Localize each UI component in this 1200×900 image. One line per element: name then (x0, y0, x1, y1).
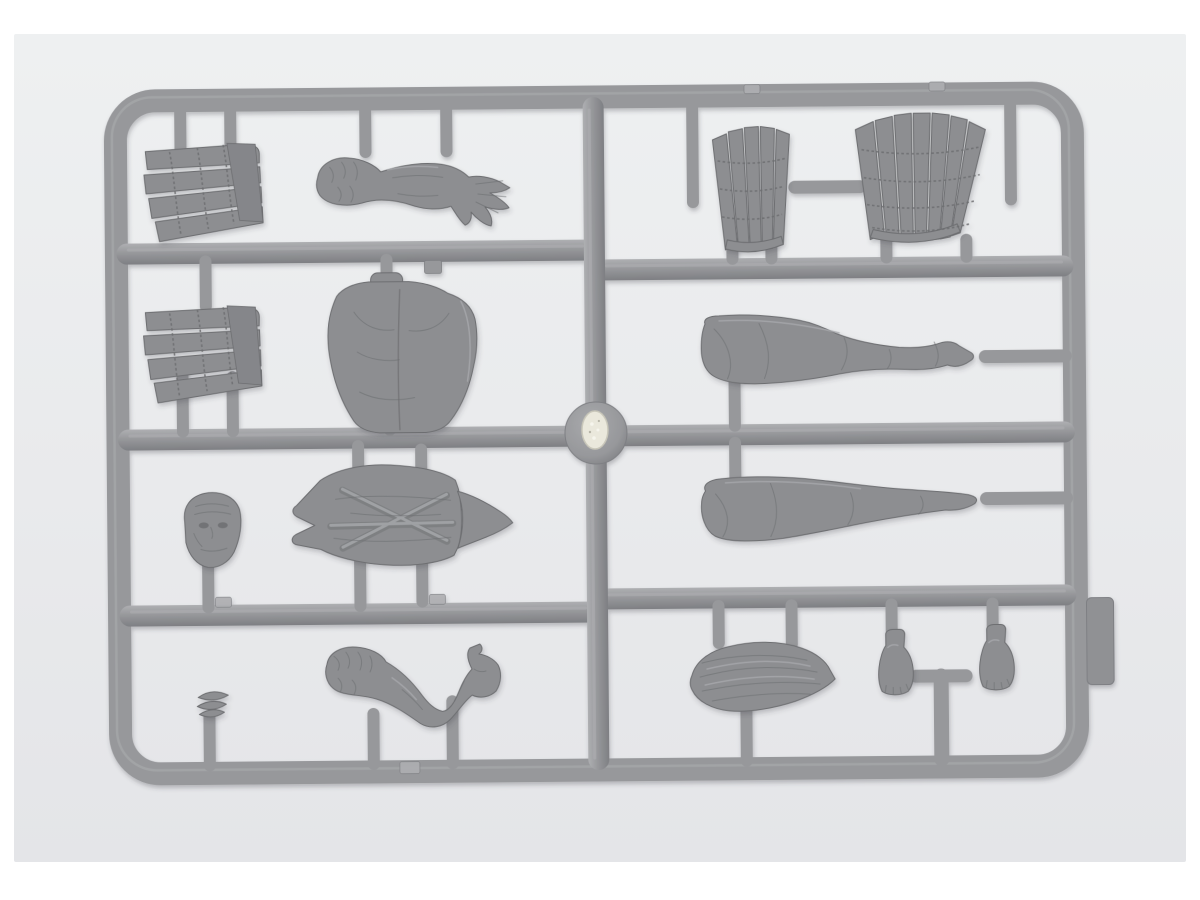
part-lamellar-skirt-small (712, 126, 790, 252)
molding-tab-top-2 (929, 82, 945, 91)
sprue-photo (0, 0, 1200, 900)
part-torso-back (327, 272, 477, 433)
molding-tab-runner-a (424, 260, 441, 273)
molding-tab-bottom (400, 762, 420, 774)
t-runner-stem (941, 676, 942, 759)
molding-tab-runner-c2 (429, 594, 445, 604)
runner-upper-right (594, 255, 1073, 280)
gate-mark (582, 411, 608, 449)
molding-tab-right-edge (1086, 597, 1114, 684)
part-hair-knot (197, 692, 228, 717)
molding-tab-top-1 (744, 85, 760, 94)
injection-gate-disc (565, 402, 628, 465)
runner-lower-right (597, 584, 1076, 609)
molding-tab-runner-c1 (215, 597, 231, 607)
photo-canvas (0, 0, 1200, 900)
runner-upper-left (116, 240, 594, 265)
